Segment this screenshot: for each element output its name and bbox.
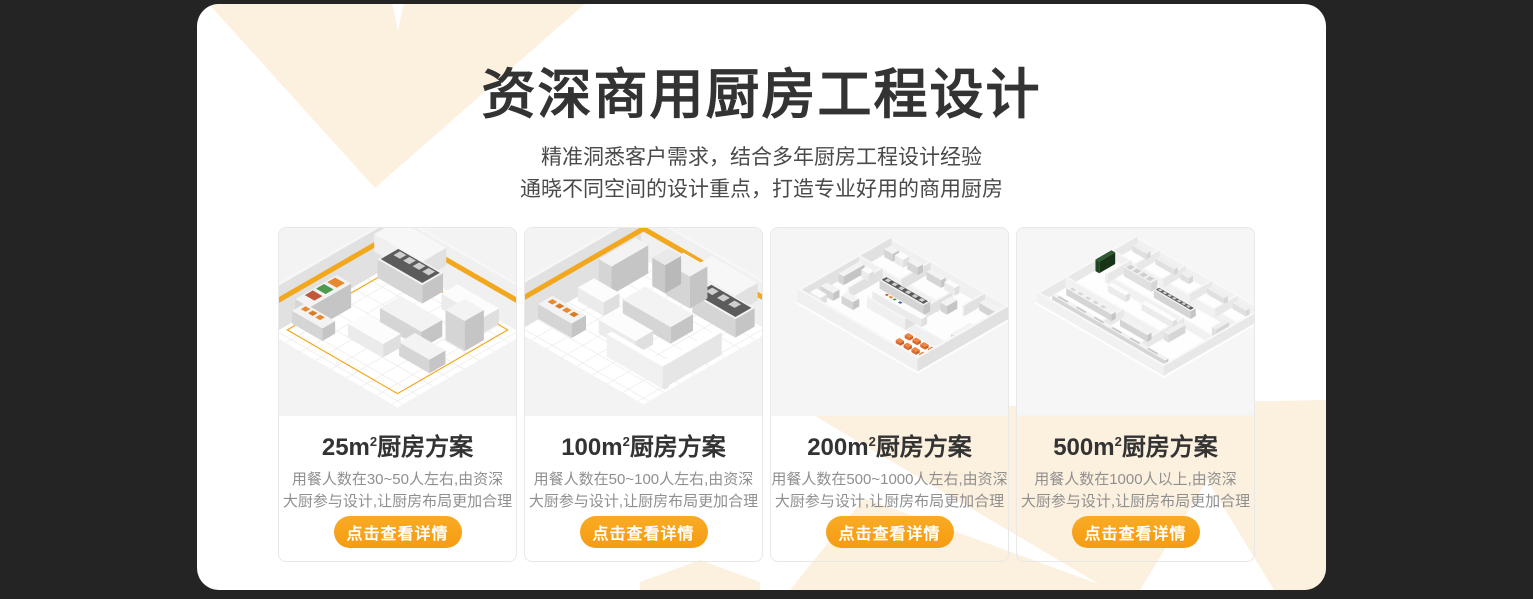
plan-card-200sqm[interactable]: 200m2厨房方案 用餐人数在500~1000人左右,由资深 大厨参与设计,让厨… (770, 227, 1009, 562)
plan-card-title: 25m2厨房方案 (279, 427, 516, 462)
plan-card-title: 100m2厨房方案 (525, 427, 762, 462)
plan-card-title: 200m2厨房方案 (771, 427, 1008, 462)
page-subtitle: 精准洞悉客户需求，结合多年厨房工程设计经验 通晓不同空间的设计重点，打造专业好用… (197, 142, 1326, 205)
view-details-button[interactable]: 点击查看详情 (580, 516, 708, 548)
plan-cards-row: 25m2厨房方案 用餐人数在30~50人左右,由资深 大厨参与设计,让厨房布局更… (278, 227, 1255, 562)
kitchen-render-100sqm-image (525, 228, 762, 416)
plan-card-title: 500m2厨房方案 (1017, 427, 1254, 462)
plan-card-500sqm[interactable]: 500m2厨房方案 用餐人数在1000人以上,由资深 大厨参与设计,让厨房布局更… (1016, 227, 1255, 562)
plan-card-description: 用餐人数在50~100人左右,由资深 大厨参与设计,让厨房布局更加合理 (525, 469, 762, 513)
page: { "theme": { "page_background": "#242424… (0, 0, 1533, 599)
panel-content: 资深商用厨房工程设计 精准洞悉客户需求，结合多年厨房工程设计经验 通晓不同空间的… (197, 4, 1326, 590)
plan-card-description: 用餐人数在30~50人左右,由资深 大厨参与设计,让厨房布局更加合理 (279, 469, 516, 513)
main-panel: 资深商用厨房工程设计 精准洞悉客户需求，结合多年厨房工程设计经验 通晓不同空间的… (197, 4, 1326, 590)
kitchen-render-200sqm-image (771, 228, 1008, 416)
plan-card-description: 用餐人数在1000人以上,由资深 大厨参与设计,让厨房布局更加合理 (1017, 469, 1254, 513)
plan-card-100sqm[interactable]: 100m2厨房方案 用餐人数在50~100人左右,由资深 大厨参与设计,让厨房布… (524, 227, 763, 562)
view-details-button[interactable]: 点击查看详情 (1072, 516, 1200, 548)
view-details-button[interactable]: 点击查看详情 (334, 516, 462, 548)
page-title: 资深商用厨房工程设计 (197, 4, 1326, 129)
kitchen-render-25sqm-image (279, 228, 516, 416)
plan-card-description: 用餐人数在500~1000人左右,由资深 大厨参与设计,让厨房布局更加合理 (771, 469, 1008, 513)
kitchen-render-500sqm-image (1017, 228, 1254, 416)
plan-card-25sqm[interactable]: 25m2厨房方案 用餐人数在30~50人左右,由资深 大厨参与设计,让厨房布局更… (278, 227, 517, 562)
view-details-button[interactable]: 点击查看详情 (826, 516, 954, 548)
